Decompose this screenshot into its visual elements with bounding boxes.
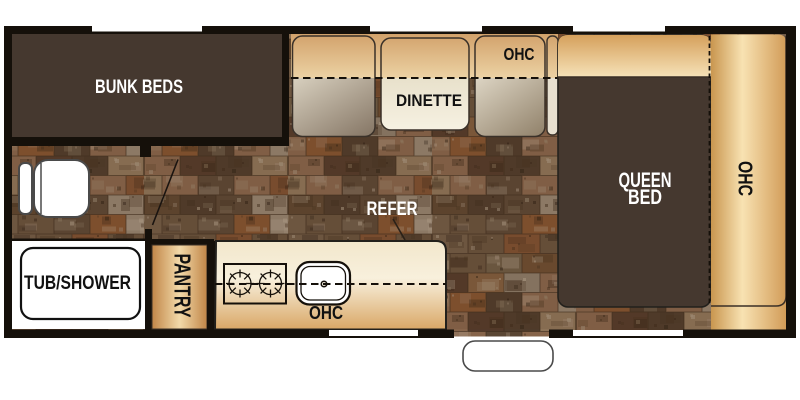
svg-text:REFER: REFER [367, 198, 418, 220]
svg-text:DINETTE: DINETTE [396, 91, 462, 110]
svg-text:TUB/SHOWER: TUB/SHOWER [24, 272, 131, 294]
svg-text:OHC: OHC [309, 303, 343, 323]
svg-text:BED: BED [628, 186, 662, 209]
svg-text:PANTRY: PANTRY [169, 254, 195, 318]
svg-text:OHC: OHC [504, 44, 535, 64]
svg-text:BUNK BEDS: BUNK BEDS [95, 77, 183, 98]
svg-text:OHC: OHC [734, 161, 757, 196]
